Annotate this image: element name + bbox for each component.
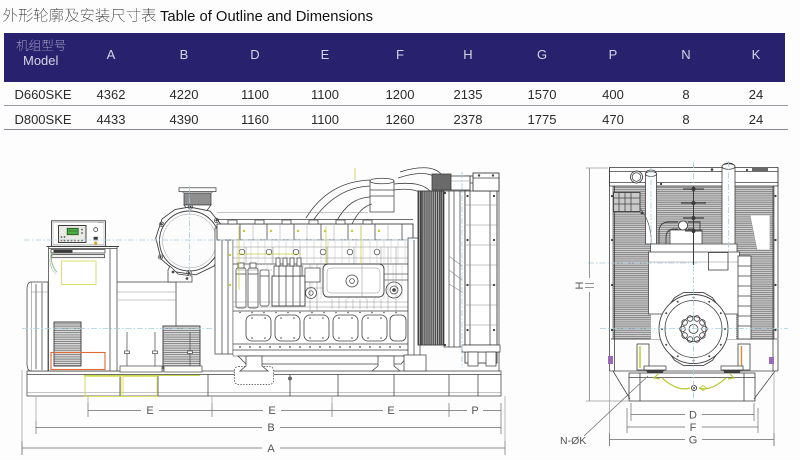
svg-text:D: D: [689, 410, 697, 422]
svg-text:F: F: [690, 422, 697, 434]
svg-text:B: B: [267, 422, 274, 434]
svg-text:P: P: [471, 405, 478, 417]
svg-text:H: H: [574, 281, 586, 289]
svg-text:A: A: [267, 443, 275, 455]
svg-text:E: E: [146, 405, 153, 417]
svg-text:G: G: [689, 435, 698, 447]
svg-text:E: E: [268, 405, 275, 417]
svg-text:N-ØK: N-ØK: [560, 435, 586, 447]
svg-text:E: E: [387, 405, 394, 417]
